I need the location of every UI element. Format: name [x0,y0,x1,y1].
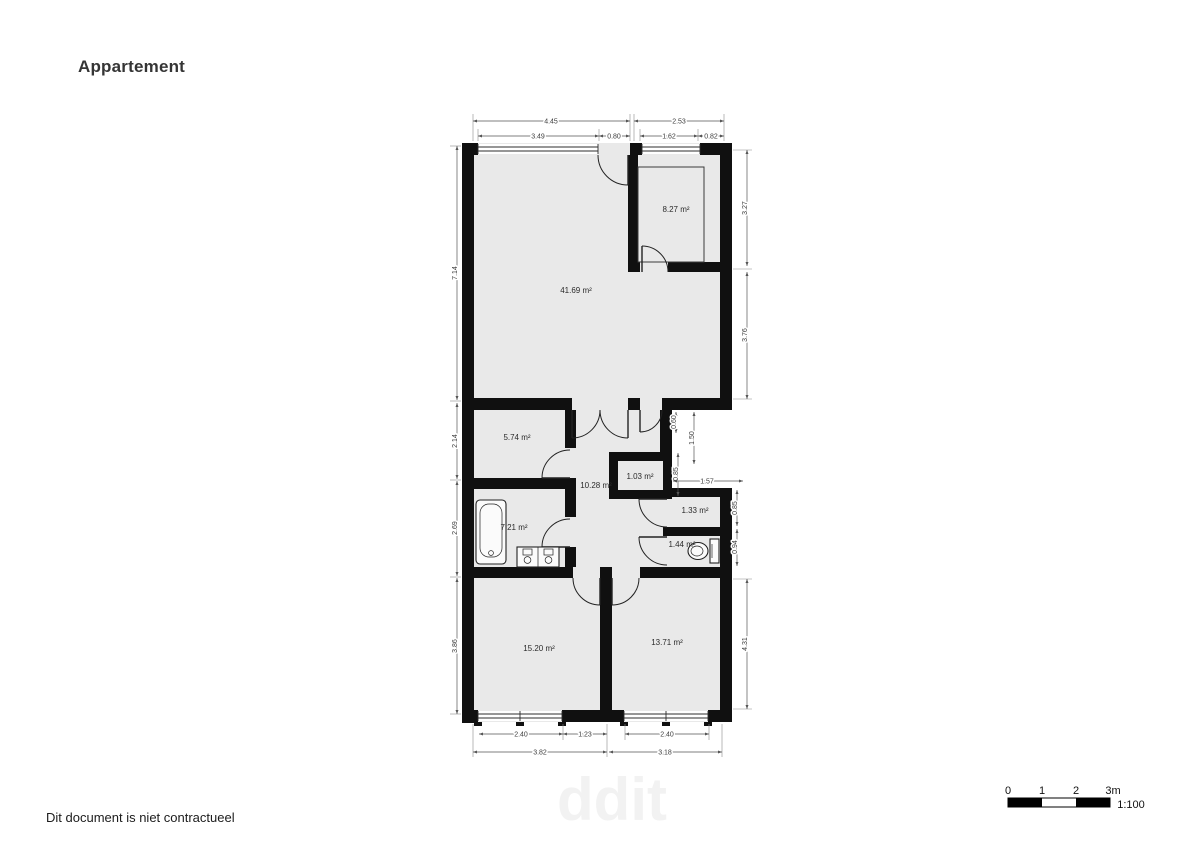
dim-right-157: 1.57 [700,479,714,486]
scale-tick-1: 1 [1039,785,1045,797]
dim-bottom-240b: 2.40 [660,732,674,739]
wall-storage-top [663,488,732,497]
dim-right-150: 1.50 [689,431,696,445]
dim-bottom-382: 3.82 [533,750,547,757]
room-label-storage: 1.33 m² [681,506,708,515]
scale-tick-3: 3m [1105,785,1120,797]
wall-bedroom-divider [600,578,612,711]
dim-right-094: 0.94 [732,540,739,554]
wall-right-upper [720,143,732,273]
scale-bar-segment-2 [1076,798,1110,807]
watermark-text: ddit [557,766,667,833]
dim-right-060: 0.60 [671,415,678,429]
dim-right-327: 3.27 [742,201,749,215]
window-bottom-right [624,711,708,721]
exterior-notch [672,410,732,488]
scale-bar-segment-1 [1008,798,1042,807]
dim-left-714: 7.14 [452,266,459,280]
wall-left-outer [462,143,474,723]
window-top-left [478,144,598,154]
dim-left-269: 2.69 [452,521,459,535]
scale-tick-0: 0 [1005,785,1011,797]
window-top-right [642,144,700,154]
dim-right-085b: 0.85 [732,501,739,515]
wall-closet-top [609,452,672,461]
wall-mid-left [462,478,576,489]
scale-tick-2: 2 [1073,785,1079,797]
vanity-sinks [517,547,559,567]
scale-ratio: 1:100 [1117,799,1145,811]
bathtub [476,500,506,564]
dim-bottom-123: 1.23 [578,732,592,739]
wall-kitchen-left [628,155,638,262]
room-label-laundry: 5.74 m² [503,433,530,442]
dim-left-386: 3.86 [452,639,459,653]
dim-right-085a: 0.85 [673,467,680,481]
wall-right-lower [720,488,732,722]
dim-right-431: 4.31 [742,637,749,651]
dim-top-082: 0.82 [704,134,718,141]
window-sill-marks [474,722,712,726]
room-label-bedroom-right: 13.71 m² [651,638,683,647]
room-label-bedroom-left: 15.20 m² [523,644,555,653]
room-label-closet: 1.03 m² [626,472,653,481]
room-label-living: 41.69 m² [560,286,592,295]
room-label-wc: 1.44 m² [668,540,695,549]
dim-top-445: 4.45 [544,119,558,126]
room-label-bathroom: 7.21 m² [500,523,527,532]
dim-top-162: 1.62 [662,134,676,141]
dim-left-214: 2.14 [452,434,459,448]
floorplan-document: Appartement Dit document is niet contrac… [0,0,1200,851]
window-bottom-left [478,711,562,721]
room-label-hall: 10.28 m² [580,481,612,490]
scale-bar: 0 1 2 3m 1:100 [1005,785,1145,811]
floorplan-drawing: ddit [0,0,1200,851]
dim-top-349: 3.49 [531,134,545,141]
dim-right-376: 3.76 [742,328,749,342]
dim-bottom-240a: 2.40 [514,732,528,739]
room-label-kitchen: 8.27 m² [662,205,689,214]
dim-top-253: 2.53 [672,119,686,126]
wall-bedrooms-top [462,567,573,578]
dim-bottom-318: 3.18 [658,750,672,757]
dim-top-080: 0.80 [607,134,621,141]
wall-living-bottom [462,398,572,410]
